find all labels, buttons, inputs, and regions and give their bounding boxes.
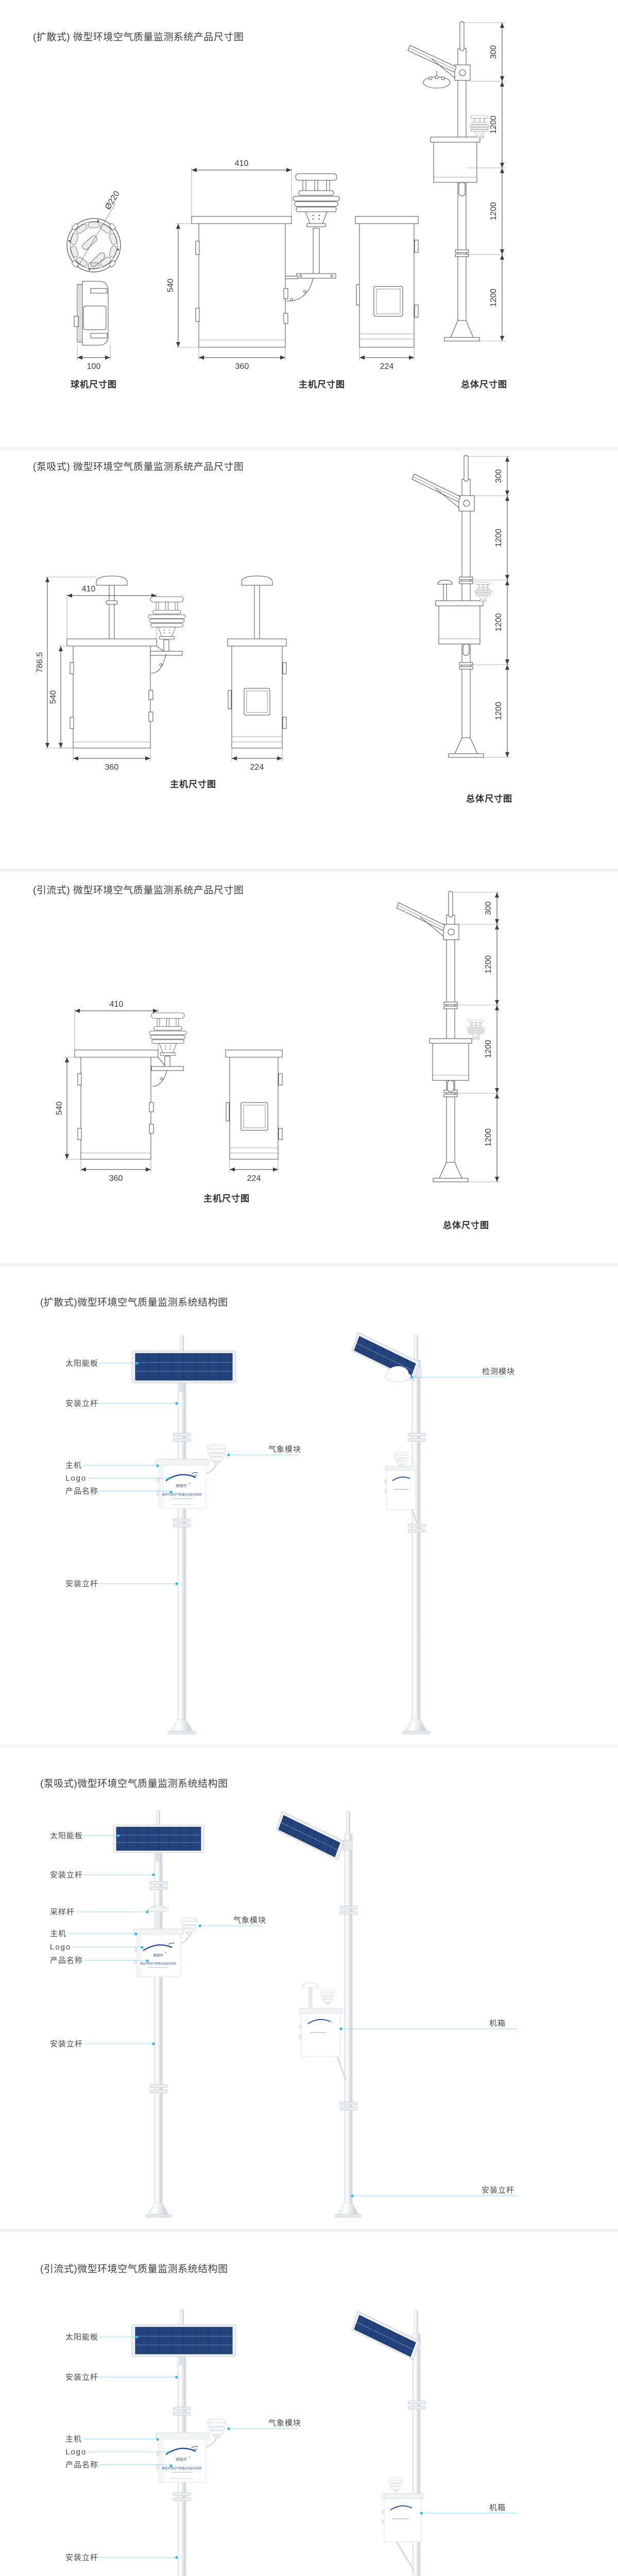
section-divider [0,1263,618,1266]
label-mounting-pole-bottom: 安装立杆 [50,2040,83,2048]
pole-dim-1200-a: 1200 [494,529,503,547]
main-side-width-label: 224 [380,362,394,371]
ball-caption: 球机尺寸图 [71,379,117,389]
label-product-name: 产品名称 [65,1487,98,1496]
main-height-label: 540 [166,279,175,293]
main-top-width-label: 410 [235,159,249,168]
section-divider [0,869,618,872]
overall-caption: 总体尺寸图 [461,379,507,389]
label-host: 主机 [50,1929,66,1938]
label-weather-module: 气象模块 [268,2419,301,2428]
pole-dim-1200-b: 1200 [494,613,503,632]
overall-caption: 总体尺寸图 [443,1220,489,1230]
diagram-canvas: (扩散式) 微型环境空气质量监测系统产品尺寸图 [0,0,618,2576]
label-product-name: 产品名称 [65,2461,98,2469]
main-front-width-label: 360 [105,763,119,772]
section-title: (泵吸式) 微型环境空气质量监测系统产品尺寸图 [33,461,244,472]
page: (扩散式) 微型环境空气质量监测系统产品尺寸图 [0,0,618,2576]
label-detector-module: 检测模块 [482,1367,515,1376]
label-solar-panel: 太阳能板 [50,1831,83,1840]
main-caption: 主机尺寸图 [299,379,345,389]
main-top-width-label: 410 [82,585,96,594]
section-title: (引流式) 微型环境空气质量监测系统产品尺寸图 [33,885,244,896]
section-divider [0,2229,618,2232]
label-cabinet: 机箱 [489,2503,506,2512]
cabinet-logo-text: 安柏尔 [176,1483,187,1488]
cabinet-logo-text: 安柏尔 [176,2457,187,2462]
section-title: (扩散式) 微型环境空气质量监测系统产品尺寸图 [33,31,244,43]
main-height-label: 540 [49,690,58,704]
label-product-name: 产品名称 [50,1956,83,1965]
label-mounting-pole: 安装立杆 [65,1399,98,1408]
pole-dim-300: 300 [494,469,503,483]
label-mounting-pole-bottom: 安装立杆 [65,1580,98,1588]
label-weather-module: 气象模块 [268,1445,301,1454]
pole-dim-1200-c: 1200 [484,1128,493,1147]
section-title: (扩散式)微型环境空气质量监测系统结构图 [40,1297,228,1308]
label-weather-module: 气象模块 [233,1916,266,1925]
pole-dim-1200-c: 1200 [489,289,498,307]
cabinet-product-text: 微型环境空气质量在线监测系统 [162,2466,202,2470]
label-host: 主机 [65,2435,82,2444]
pole-dim-1200-a: 1200 [489,115,498,134]
pole-dim-1200-b: 1200 [484,1040,493,1058]
label-mounting-pole: 安装立杆 [65,2373,98,2382]
pole-dim-1200-a: 1200 [484,955,493,974]
label-cabinet: 机箱 [489,2019,506,2028]
section-title: (泵吸式)微型环境空气质量监测系统结构图 [40,1778,228,1789]
label-mounting-pole-bottom: 安装立杆 [65,2553,98,2562]
label-mounting-pole-right: 安装立杆 [482,2186,514,2195]
section-divider [0,1744,618,1748]
label-host: 主机 [65,1461,82,1470]
label-solar-panel: 太阳能板 [65,2332,98,2342]
main-side-width-label: 224 [247,1174,261,1183]
label-logo: Logo [65,1474,87,1483]
cabinet-product-text: 微型环境空气质量在线监测系统 [162,1493,202,1497]
main-top-width-label: 410 [110,1000,124,1009]
cabinet-product-text: 微型环境空气质量在线监测系统 [140,1962,176,1965]
pole-dim-1200-c: 1200 [494,702,503,720]
label-logo: Logo [50,1943,71,1952]
pole-dim-1200-b: 1200 [489,202,498,221]
main-side-width-label: 224 [250,763,264,772]
label-logo: Logo [65,2448,87,2456]
section-title: (引流式)微型环境空气质量监测系统结构图 [40,2263,228,2275]
pole-dim-300: 300 [484,902,493,916]
cabinet-logo-text: 安柏尔 [153,1953,163,1957]
section-divider [0,447,618,450]
label-sampling-pole: 采样杆 [50,1908,75,1917]
label-mounting-pole: 安装立杆 [50,1871,83,1879]
overall-caption: 总体尺寸图 [466,793,512,804]
main-caption: 主机尺寸图 [170,779,216,789]
label-solar-panel: 太阳能板 [65,1359,98,1368]
main-caption: 主机尺寸图 [203,1193,250,1204]
main-front-width-label: 360 [109,1174,123,1183]
main-front-width-label: 360 [235,362,249,371]
main-height-label: 540 [55,1101,64,1115]
main-total-height-label: 786.5 [36,652,44,673]
ball-width-label: 100 [87,362,101,371]
pole-dim-300: 300 [489,45,498,59]
